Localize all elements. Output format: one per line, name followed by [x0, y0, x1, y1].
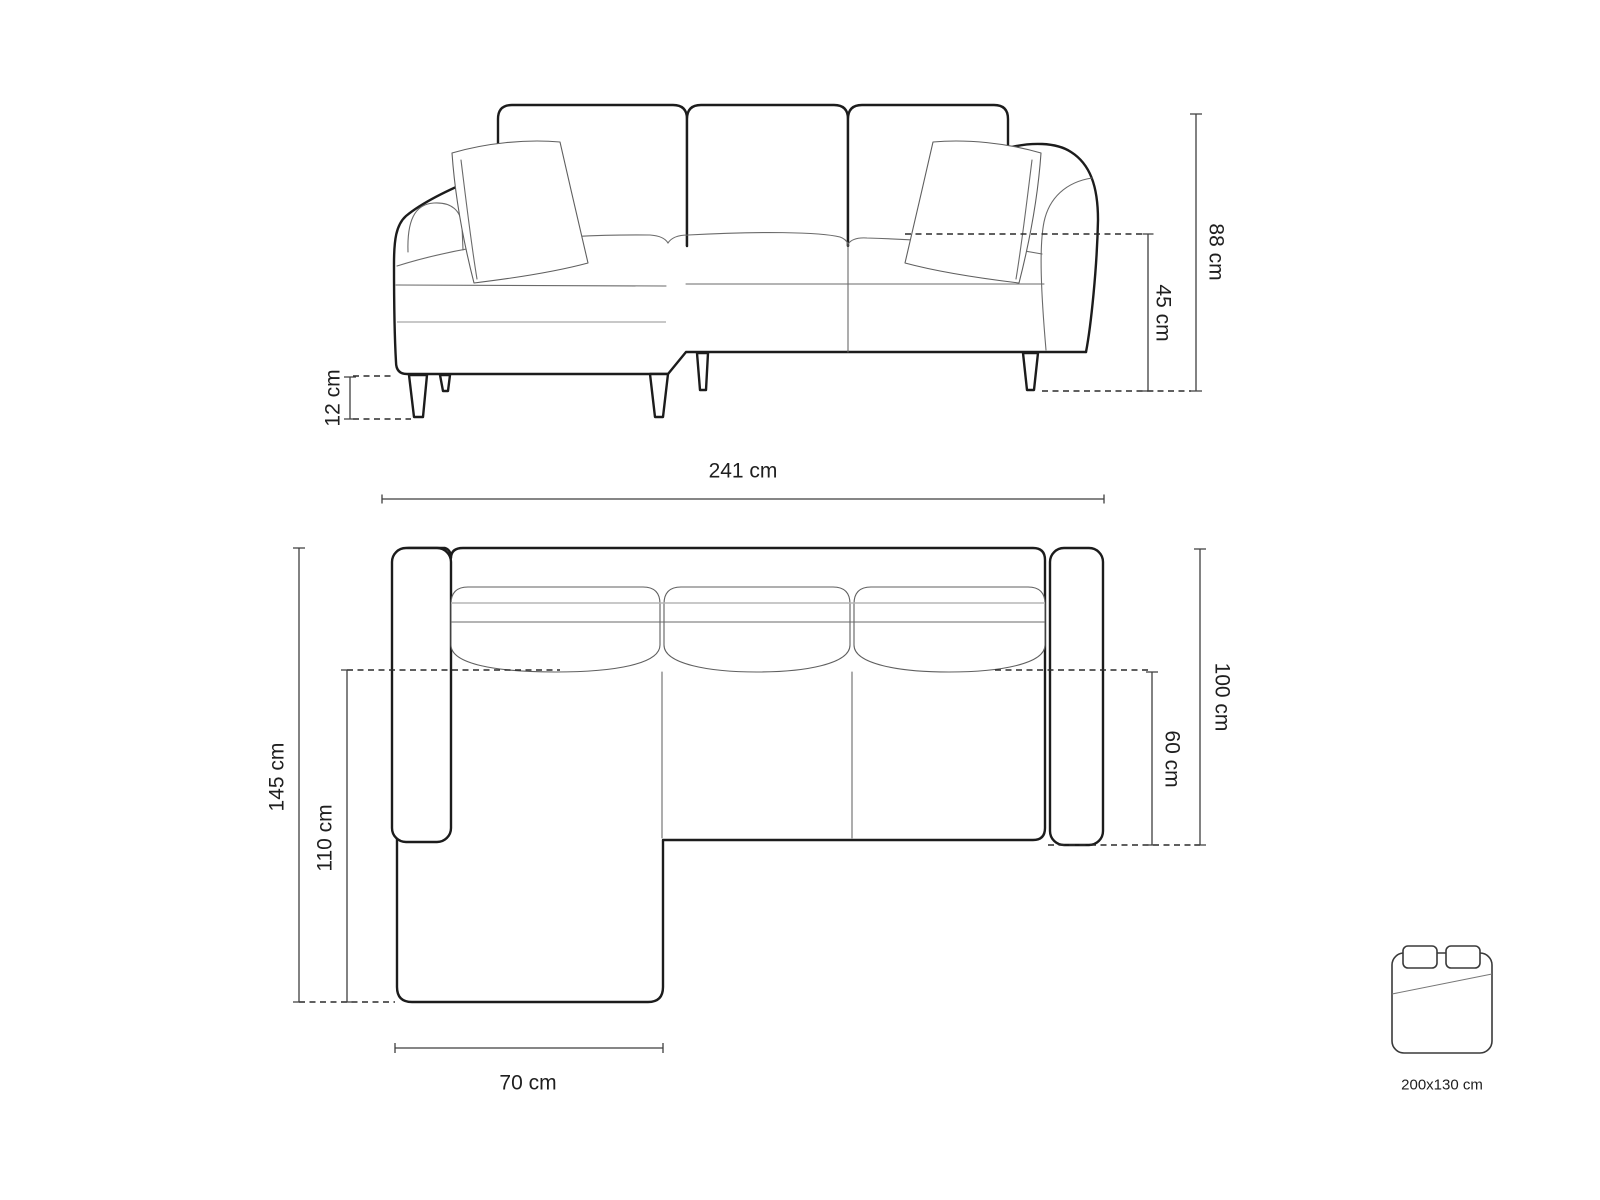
diagram-canvas: 88 cm 45 cm 12 cm 241 c [0, 0, 1600, 1200]
sleeping-area: 200x130 cm [1392, 946, 1492, 1093]
sofa-leg [440, 375, 450, 391]
sofa-leg [697, 353, 708, 390]
dimension-seat-height: 45 cm [1143, 234, 1175, 391]
sofa-leg [409, 375, 427, 417]
dim-label-leg-height: 12 cm [321, 369, 344, 426]
dimension-seat-depth: 60 cm [1146, 672, 1184, 845]
dim-label-chaise-depth: 110 cm [313, 804, 336, 871]
sofa-leg [650, 374, 668, 417]
dim-label-body-depth: 100 cm [1211, 663, 1234, 732]
dim-label-total-depth: 145 cm [265, 743, 288, 812]
dim-label-seat-height: 45 cm [1152, 284, 1175, 341]
dimension-body-depth: 100 cm [1194, 549, 1234, 845]
dim-label-total-height: 88 cm [1205, 223, 1228, 280]
right-arm-inner-line [1041, 178, 1092, 350]
dimension-chaise-depth: 110 cm [313, 670, 353, 1002]
armrest-right [1050, 548, 1103, 845]
dimension-chaise-width: 70 cm [395, 1043, 663, 1094]
sofa-leg [1023, 353, 1038, 390]
dimension-total-width: 241 cm [382, 459, 1104, 503]
armrest-left [392, 548, 451, 842]
dimension-total-height: 88 cm [1190, 114, 1228, 391]
dim-label-total-width: 241 cm [709, 459, 778, 482]
dimension-total-depth: 145 cm [265, 548, 305, 1002]
bed-pillow-right [1446, 946, 1480, 968]
sleeping-area-label: 200x130 cm [1401, 1076, 1483, 1093]
dim-label-seat-depth: 60 cm [1161, 730, 1184, 787]
back-cushion-middle [664, 587, 850, 672]
bed-pillow-left [1403, 946, 1437, 968]
sofa-back-section-middle [687, 105, 848, 246]
chaise-front-seam [396, 285, 666, 286]
back-cushion-right [854, 587, 1045, 672]
top-view: 241 cm 145 cm 110 cm 100 cm 60 cm 70 cm [265, 459, 1233, 1094]
left-arm-inner-line [408, 203, 463, 252]
dimension-leg-height: 12 cm [321, 369, 356, 426]
dim-label-chaise-width: 70 cm [499, 1071, 556, 1094]
sofa-dimensions-diagram: 88 cm 45 cm 12 cm 241 c [0, 0, 1600, 1200]
front-view: 88 cm 45 cm 12 cm [321, 105, 1227, 427]
back-cushion-left [451, 587, 660, 672]
